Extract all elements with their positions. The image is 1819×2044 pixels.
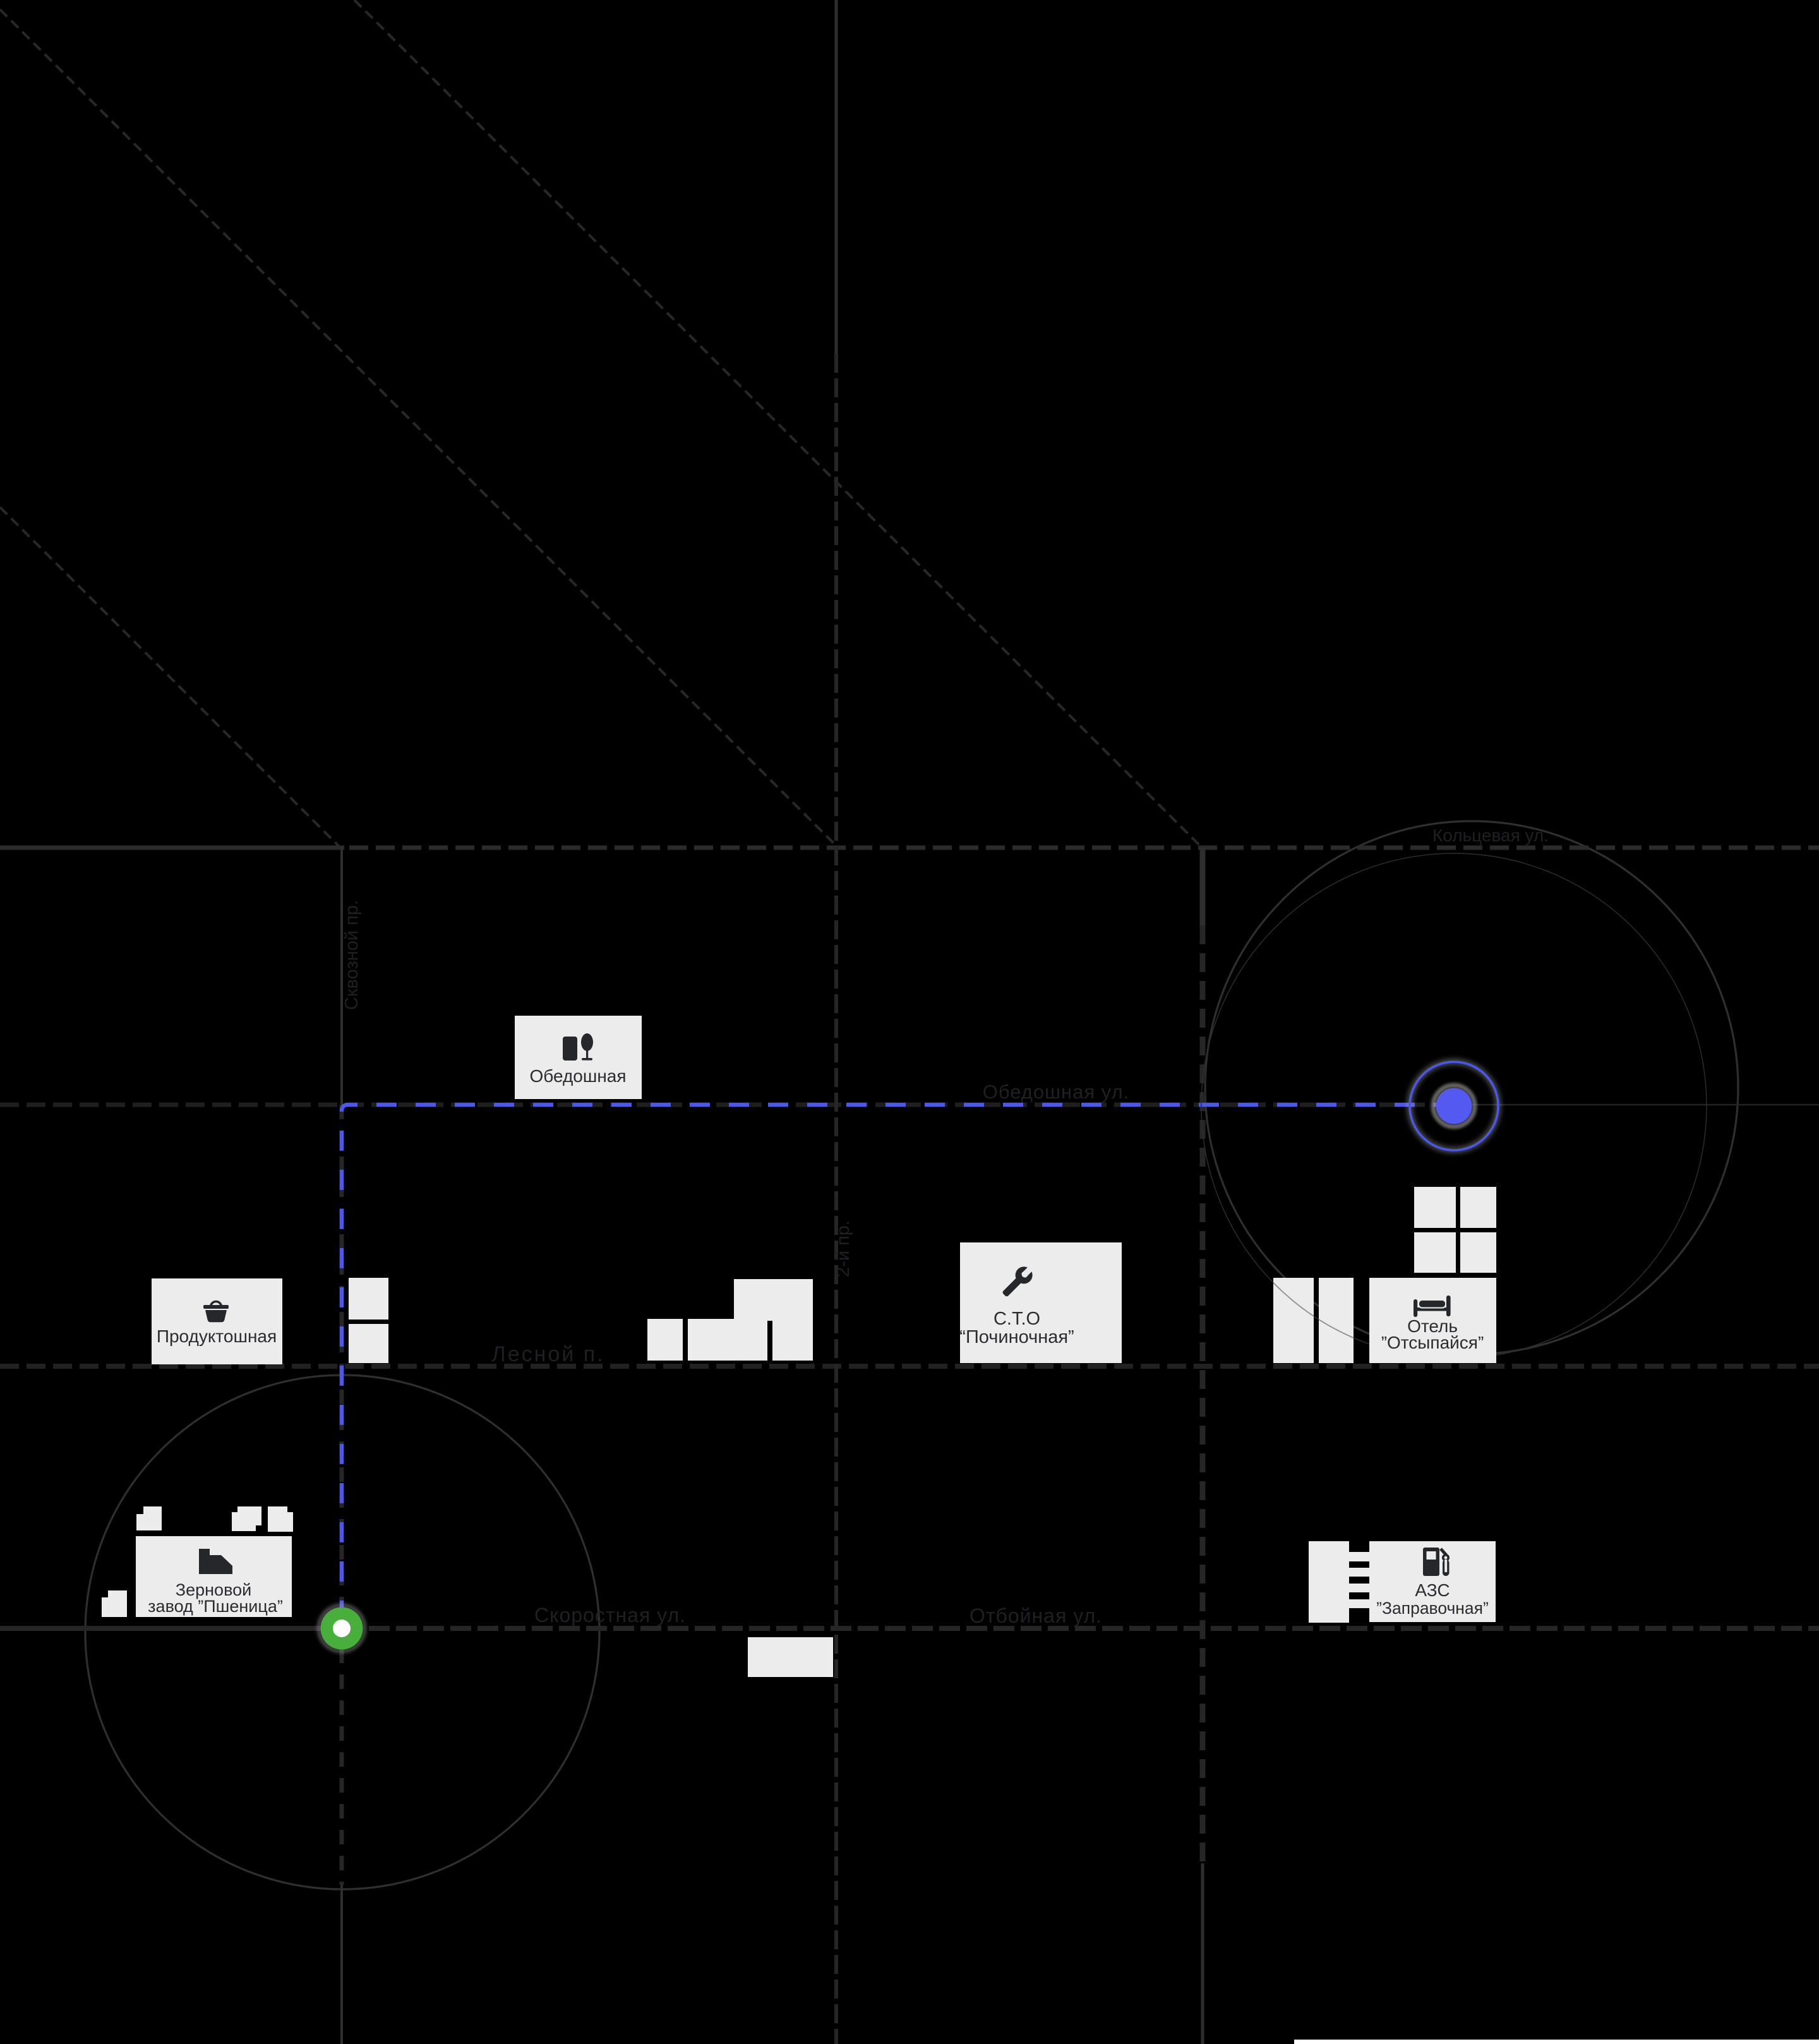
svg-text:“Починочная”: “Починочная” [959, 1327, 1074, 1347]
svg-text:Лесной п.: Лесной п. [491, 1342, 604, 1366]
svg-text:Обедошная ул.: Обедошная ул. [983, 1081, 1130, 1103]
svg-text:завод ”Пшеница”: завод ”Пшеница” [148, 1597, 283, 1616]
svg-text:Продуктошная: Продуктошная [157, 1326, 277, 1346]
svg-text:Скоростная ул.: Скоростная ул. [534, 1604, 686, 1626]
svg-text:Сквозной пр.: Сквозной пр. [342, 900, 362, 1010]
svg-text:С.Т.О: С.Т.О [994, 1309, 1040, 1329]
svg-text:Отбойная ул.: Отбойная ул. [970, 1604, 1102, 1627]
svg-text:Обедошная: Обедошная [529, 1066, 626, 1086]
svg-text:”Заправочная”: ”Заправочная” [1376, 1599, 1489, 1618]
svg-text:Кольцевая ул.: Кольцевая ул. [1432, 826, 1549, 845]
svg-text:”Отсыпайся”: ”Отсыпайся” [1381, 1333, 1484, 1352]
svg-text:АЗС: АЗС [1415, 1580, 1450, 1600]
svg-text:2-й пр.: 2-й пр. [833, 1220, 853, 1277]
